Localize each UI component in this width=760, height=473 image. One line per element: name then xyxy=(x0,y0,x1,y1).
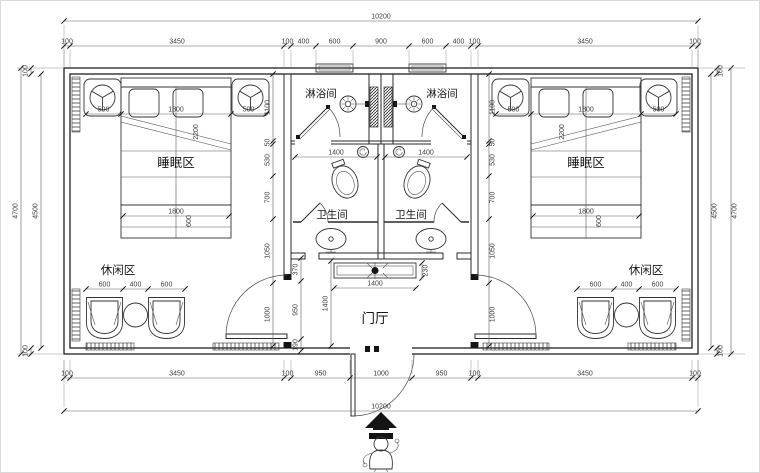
dim-label: 1050 xyxy=(490,243,497,259)
bath-wall-stub-right xyxy=(457,253,471,259)
bedroom-right-door-leaf xyxy=(475,334,536,339)
dim-label: 100 xyxy=(282,371,294,378)
dim-label: 1050 xyxy=(265,243,272,259)
room-label-leisure-left: 休闲区 xyxy=(101,263,136,277)
dim-label: 600 xyxy=(422,39,434,46)
entry-threshold-block xyxy=(365,346,370,352)
leisure-left xyxy=(87,298,185,339)
dim-label: 230 xyxy=(423,265,430,277)
entry-threshold-block xyxy=(374,346,379,352)
room-label-leisure-right: 休闲区 xyxy=(629,263,664,277)
dim-label: 1100 xyxy=(265,100,272,115)
dim-label: 10200 xyxy=(371,14,391,21)
dim-label: 10200 xyxy=(371,404,391,411)
dim-label: 370 xyxy=(293,264,300,276)
dim-label: 100 xyxy=(61,371,73,378)
bath-bottom-wall xyxy=(319,253,443,259)
dim-label: 100 xyxy=(23,65,30,77)
dim-label: 1800 xyxy=(168,107,184,114)
room-label-shower-right: 淋浴间 xyxy=(426,87,458,100)
bedroom-left-door-swing xyxy=(226,275,287,336)
dim-label: 100 xyxy=(689,371,701,378)
bathroom-center-wall xyxy=(378,144,384,259)
dim-label: 700 xyxy=(490,192,497,204)
dim-label: 1100 xyxy=(490,100,497,115)
dim-label: 600 xyxy=(99,282,111,289)
shower-door-opening-right xyxy=(431,140,467,145)
bathroom-right xyxy=(394,147,462,254)
shower-head-icon xyxy=(406,96,422,112)
room-label-foyer: 门厅 xyxy=(362,311,389,326)
dim-label: 100 xyxy=(469,39,481,46)
dim-label: 500 xyxy=(508,107,520,114)
room-label-toilet-left: 卫生间 xyxy=(316,208,348,221)
baseboard-heater xyxy=(483,343,549,350)
shower-door-swing xyxy=(328,107,340,137)
dim-label: 400 xyxy=(130,282,142,289)
room-label-toilet-right: 卫生间 xyxy=(395,208,427,221)
side-table xyxy=(124,303,148,327)
dim-label: 950 xyxy=(436,371,448,378)
armchair xyxy=(640,298,676,339)
dim-label: 4700 xyxy=(13,203,20,219)
foyer xyxy=(334,262,416,279)
dim-label: 50 xyxy=(265,139,272,147)
shower-door-swing xyxy=(422,107,434,137)
dim-label: 400 xyxy=(298,39,310,46)
dim-label: 1000 xyxy=(265,307,272,323)
dim-label: 600 xyxy=(329,39,341,46)
shower-left xyxy=(296,96,367,139)
person-icon xyxy=(363,437,399,473)
baseboard-heater xyxy=(628,343,676,350)
dim-label: 950 xyxy=(293,304,300,316)
dim-label: 400 xyxy=(453,39,465,46)
room-label-sleeping-right: 睡眠区 xyxy=(567,156,605,170)
dim-label: 3450 xyxy=(577,39,593,46)
entry-door-leaf xyxy=(351,354,355,416)
dim-label: 3450 xyxy=(577,371,593,378)
radiator-right-top xyxy=(682,77,690,132)
radiator-left-top xyxy=(72,77,80,132)
room-label-sleeping-left: 睡眠区 xyxy=(157,156,195,170)
floor-plan-svg: 睡眠区 睡眠区 休闲区 休闲区 淋浴间 淋浴间 卫生间 卫生间 门厅 10200… xyxy=(1,1,760,473)
dim-label: 700 xyxy=(265,192,272,204)
dim-label: 1800 xyxy=(168,209,184,216)
radiator-right-bottom xyxy=(682,289,690,341)
floor-drain-icon xyxy=(358,147,369,158)
dim-label: 1800 xyxy=(578,107,594,114)
dim-label: 400 xyxy=(621,282,633,289)
armchair xyxy=(87,298,123,339)
dim-label: 4500 xyxy=(712,203,719,219)
leisure-right xyxy=(578,298,676,339)
armchair xyxy=(578,298,614,339)
toilet-door-swing xyxy=(434,203,442,222)
dim-label: 1000 xyxy=(373,371,389,378)
dim-label: 1400 xyxy=(323,296,330,312)
shower-right xyxy=(395,96,466,139)
dim-label: 600 xyxy=(161,282,173,289)
toilet xyxy=(326,157,363,202)
duct-shaft-left xyxy=(370,87,378,127)
dim-label: 500 xyxy=(98,107,110,114)
dim-label: 100 xyxy=(282,39,294,46)
baseboard-heater xyxy=(213,343,279,350)
dim-label: 1000 xyxy=(490,307,497,323)
dim-label: 500 xyxy=(653,107,665,114)
bedroom-left-door-leaf xyxy=(226,334,287,339)
dim-label: 2200 xyxy=(559,124,566,140)
bathroom-left xyxy=(301,147,369,254)
left-door-opening xyxy=(283,280,292,342)
dim-label: 100 xyxy=(469,371,481,378)
dim-label: 950 xyxy=(315,371,327,378)
baseboard-heater xyxy=(86,343,134,350)
dim-label: 3450 xyxy=(169,39,185,46)
floor-drain-icon xyxy=(394,147,405,158)
dim-label: 600 xyxy=(596,215,603,227)
entry-markers xyxy=(363,412,399,473)
dim-label: 900 xyxy=(375,39,387,46)
room-labels: 睡眠区 睡眠区 休闲区 休闲区 淋浴间 淋浴间 卫生间 卫生间 门厅 xyxy=(101,87,664,326)
dim-label: 100 xyxy=(718,65,725,77)
dim-label: 1400 xyxy=(367,281,383,288)
shower-head-icon xyxy=(340,96,356,112)
dim-label: 1400 xyxy=(328,150,344,157)
entry-opening xyxy=(350,347,412,355)
right-door-opening xyxy=(470,280,479,342)
dim-label: 100 xyxy=(689,39,701,46)
dim-label: 500 xyxy=(243,107,255,114)
dim-label: 1800 xyxy=(578,209,594,216)
floor-plan-canvas: 睡眠区 睡眠区 休闲区 休闲区 淋浴间 淋浴间 卫生间 卫生间 门厅 10200… xyxy=(0,0,760,473)
dim-label: 2200 xyxy=(193,124,200,140)
dim-label: 1400 xyxy=(418,150,434,157)
toilet xyxy=(400,157,437,202)
dim-label: 190 xyxy=(293,339,300,351)
dim-label: 4500 xyxy=(33,203,40,219)
room-label-shower-left: 淋浴间 xyxy=(305,87,337,100)
shower-door-opening-left xyxy=(295,140,331,145)
wash-basin xyxy=(316,229,346,254)
up-arrow-icon xyxy=(365,412,397,430)
radiator-left-bottom xyxy=(72,289,80,341)
dim-label: 530 xyxy=(265,154,272,166)
dim-label: 100 xyxy=(718,345,725,357)
dim-label: 4700 xyxy=(732,203,739,219)
armchair xyxy=(149,298,185,339)
dim-label: 600 xyxy=(186,215,193,227)
dim-label: 50 xyxy=(490,139,497,147)
side-table xyxy=(615,303,639,327)
dim-label: 100 xyxy=(23,345,30,357)
dim-label: 530 xyxy=(490,154,497,166)
dim-label: 3450 xyxy=(169,371,185,378)
dim-label: 600 xyxy=(652,282,664,289)
wash-basin xyxy=(416,229,446,254)
bedroom-right-door-swing xyxy=(475,275,536,336)
duct-shaft-right xyxy=(384,87,392,127)
dim-label: 600 xyxy=(590,282,602,289)
dim-label: 100 xyxy=(61,39,73,46)
ceiling-fan-icon xyxy=(367,262,388,279)
